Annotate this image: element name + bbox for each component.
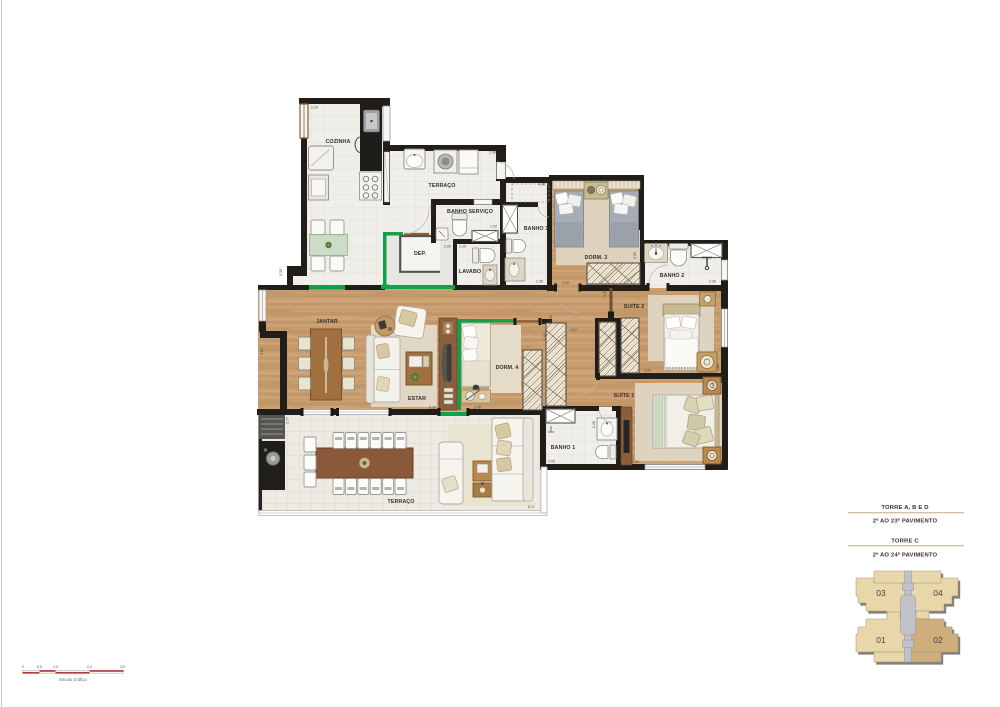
svg-text:1.95: 1.95 bbox=[549, 315, 553, 322]
svg-text:DORM. 4: DORM. 4 bbox=[496, 365, 519, 371]
svg-text:1.10: 1.10 bbox=[459, 245, 466, 249]
svg-text:2.20: 2.20 bbox=[311, 106, 318, 110]
svg-text:4.48: 4.48 bbox=[538, 183, 545, 187]
svg-text:2.61: 2.61 bbox=[543, 333, 547, 340]
svg-text:DEP.: DEP. bbox=[414, 251, 427, 257]
svg-text:SUÍTE 2: SUÍTE 2 bbox=[624, 302, 645, 310]
svg-text:3.05: 3.05 bbox=[633, 252, 637, 259]
svg-text:5.10: 5.10 bbox=[429, 406, 436, 410]
svg-text:8.17: 8.17 bbox=[528, 505, 535, 509]
svg-text:0: 0 bbox=[22, 665, 24, 669]
svg-text:BANHO 2: BANHO 2 bbox=[660, 273, 685, 279]
svg-text:1,0: 1,0 bbox=[53, 665, 58, 669]
svg-text:TORRE C: TORRE C bbox=[891, 539, 919, 545]
svg-text:DORM. 3: DORM. 3 bbox=[585, 255, 608, 261]
svg-text:03: 03 bbox=[876, 588, 886, 598]
svg-text:2.90: 2.90 bbox=[716, 364, 720, 371]
svg-text:1.35: 1.35 bbox=[536, 280, 543, 284]
svg-text:JANTAR: JANTAR bbox=[316, 319, 338, 325]
svg-text:2,0: 2,0 bbox=[87, 665, 92, 669]
svg-text:04: 04 bbox=[933, 588, 943, 598]
svg-text:3.00: 3.00 bbox=[632, 460, 639, 464]
svg-text:LAVABO: LAVABO bbox=[459, 269, 481, 275]
svg-text:5.35: 5.35 bbox=[279, 269, 283, 276]
svg-text:TORRE A, B E D: TORRE A, B E D bbox=[881, 505, 928, 511]
svg-text:2.77: 2.77 bbox=[286, 417, 290, 424]
svg-text:SUÍTE 1: SUÍTE 1 bbox=[614, 391, 635, 399]
svg-text:TERRAÇO: TERRAÇO bbox=[388, 499, 415, 505]
svg-text:0,5: 0,5 bbox=[37, 665, 42, 669]
svg-text:3.00: 3.00 bbox=[644, 369, 651, 373]
svg-text:2º AO 23º PAVIMENTO: 2º AO 23º PAVIMENTO bbox=[873, 519, 938, 525]
svg-text:2.50: 2.50 bbox=[562, 281, 569, 285]
svg-text:ESTAR: ESTAR bbox=[408, 396, 426, 402]
svg-text:2.07: 2.07 bbox=[570, 328, 577, 332]
svg-text:02: 02 bbox=[933, 635, 943, 645]
svg-text:1.05: 1.05 bbox=[430, 205, 434, 212]
svg-text:BANHO 1: BANHO 1 bbox=[551, 445, 576, 451]
svg-text:BANHO 3: BANHO 3 bbox=[524, 226, 549, 232]
svg-text:1.95: 1.95 bbox=[603, 290, 607, 297]
svg-text:2.30: 2.30 bbox=[709, 280, 716, 284]
svg-text:3,0: 3,0 bbox=[120, 665, 125, 669]
svg-text:2.08: 2.08 bbox=[489, 151, 496, 155]
svg-text:Escala Gráfica: Escala Gráfica bbox=[59, 677, 87, 682]
svg-text:1.02: 1.02 bbox=[490, 225, 497, 229]
svg-text:1.26: 1.26 bbox=[592, 421, 596, 428]
svg-text:TERRAÇO: TERRAÇO bbox=[429, 183, 456, 189]
svg-text:01: 01 bbox=[876, 635, 886, 645]
svg-text:BANHO SERVIÇO: BANHO SERVIÇO bbox=[447, 209, 493, 215]
svg-text:2.05: 2.05 bbox=[548, 460, 555, 464]
svg-text:2.00: 2.00 bbox=[444, 245, 451, 249]
svg-text:2.45: 2.45 bbox=[474, 406, 481, 410]
svg-text:COZINHA: COZINHA bbox=[326, 139, 351, 145]
svg-text:5.80: 5.80 bbox=[260, 348, 264, 355]
svg-text:2º AO 24º PAVIMENTO: 2º AO 24º PAVIMENTO bbox=[873, 553, 938, 559]
svg-text:2.60: 2.60 bbox=[711, 382, 715, 389]
